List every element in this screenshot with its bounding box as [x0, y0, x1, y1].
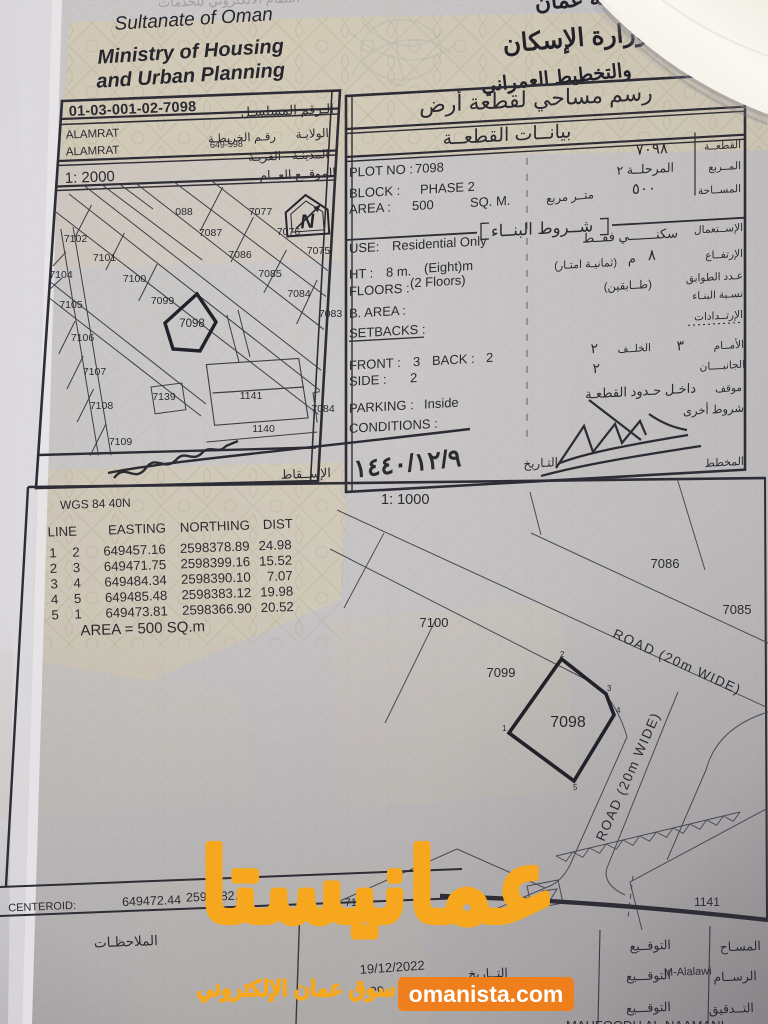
svg-text:649472.44: 649472.44: [122, 893, 182, 909]
svg-text:7101: 7101: [93, 252, 117, 264]
svg-text:5: 5: [51, 607, 59, 622]
svg-text:PHASE 2: PHASE 2: [420, 179, 475, 197]
svg-text:2: 2: [410, 370, 417, 385]
svg-text:7099: 7099: [487, 665, 516, 680]
svg-text:USE:: USE:: [349, 239, 379, 256]
svg-text:3: 3: [50, 576, 58, 591]
svg-text:7100: 7100: [420, 615, 449, 630]
svg-text:الجانبــــان: الجانبــــان: [700, 359, 745, 374]
svg-text:649484.34: 649484.34: [104, 572, 167, 589]
svg-text:3: 3: [607, 684, 612, 693]
svg-text:7104: 7104: [49, 269, 73, 281]
svg-text:2598378.89: 2598378.89: [180, 539, 250, 556]
svg-text:(2 Floors): (2 Floors): [410, 272, 466, 290]
svg-text:7102: 7102: [64, 233, 88, 245]
svg-text:7105: 7105: [59, 299, 83, 311]
svg-text:DIST: DIST: [263, 516, 294, 532]
svg-text:FRONT :: FRONT :: [349, 355, 401, 373]
svg-text:1: 1: [49, 545, 57, 560]
svg-text:7106: 7106: [71, 332, 95, 344]
svg-text:المســاحة: المســاحة: [698, 183, 741, 197]
svg-text:2: 2: [72, 544, 80, 559]
svg-text:7086: 7086: [651, 556, 680, 571]
svg-text:2598383.12: 2598383.12: [181, 585, 251, 602]
svg-text:٥٠٠: ٥٠٠: [632, 180, 656, 198]
svg-text:EASTING: EASTING: [108, 520, 166, 537]
svg-text:2: 2: [486, 350, 493, 365]
svg-text:7087: 7087: [199, 227, 223, 239]
svg-text:الولايـة: الولايـة: [295, 126, 329, 141]
svg-text:7084: 7084: [311, 403, 335, 415]
svg-text:1: 1: [74, 606, 82, 621]
svg-text:2598366.90: 2598366.90: [182, 600, 252, 617]
svg-text:الإرتفــاع: الإرتفــاع: [705, 248, 743, 262]
svg-text:التــدقيق: التــدقيق: [709, 1001, 755, 1018]
svg-text:7075: 7075: [307, 245, 331, 257]
svg-text:2598399.16: 2598399.16: [180, 554, 250, 571]
svg-text:649485.48: 649485.48: [105, 588, 168, 605]
svg-text:1141: 1141: [240, 390, 263, 402]
svg-text:7107: 7107: [83, 366, 107, 378]
svg-text:MAHFOODH AL-NAAMANI: MAHFOODH AL-NAAMANI: [566, 1018, 724, 1024]
svg-text:WGS 84 40N: WGS 84 40N: [60, 496, 131, 512]
svg-text:القطعــة: القطعــة: [704, 139, 741, 153]
svg-text:BLOCK :: BLOCK :: [349, 183, 400, 201]
svg-text:HT :: HT :: [349, 265, 373, 281]
svg-text:7085: 7085: [258, 268, 282, 280]
svg-text:2: 2: [50, 561, 58, 576]
svg-text:(طــابقين): (طــابقين): [604, 278, 652, 294]
svg-text:NORTHING: NORTHING: [180, 517, 251, 534]
svg-text:٢: ٢: [590, 340, 598, 356]
svg-text:7086: 7086: [228, 249, 252, 261]
svg-text:1141: 1141: [694, 895, 720, 909]
svg-text:B. AREA :: B. AREA :: [349, 303, 406, 321]
svg-text:24.98: 24.98: [258, 537, 292, 553]
svg-text:2598390.10: 2598390.10: [181, 570, 251, 587]
svg-text:5: 5: [74, 591, 82, 606]
svg-text:المخطط: المخطط: [705, 456, 744, 470]
svg-text:7098: 7098: [550, 714, 586, 731]
svg-text:المسـاح: المسـاح: [719, 939, 761, 955]
svg-text:LINE: LINE: [47, 524, 77, 540]
svg-text:20.52: 20.52: [260, 599, 294, 615]
svg-text:موقف: موقف: [715, 382, 742, 396]
svg-text:التوقـــيع: التوقـــيع: [626, 1000, 671, 1017]
svg-text:088: 088: [175, 206, 193, 218]
svg-text:649471.75: 649471.75: [104, 557, 167, 574]
svg-text:ALAMRAT: ALAMRAT: [66, 144, 120, 158]
svg-text:AREA :: AREA :: [349, 199, 391, 216]
svg-text:7085: 7085: [723, 602, 752, 617]
svg-text:م: م: [628, 251, 636, 267]
svg-text:٧٠٩٨: ٧٠٩٨: [636, 140, 668, 159]
svg-text:649473.81: 649473.81: [105, 603, 168, 620]
svg-text:٢: ٢: [592, 360, 600, 376]
svg-text:4: 4: [73, 575, 81, 590]
svg-text:2: 2: [560, 650, 565, 659]
svg-text:4: 4: [51, 592, 59, 607]
svg-text:7108: 7108: [90, 400, 114, 412]
svg-text:SQ. M.: SQ. M.: [470, 193, 510, 210]
svg-text:المــربع: المــربع: [708, 160, 741, 174]
svg-text:BACK :: BACK :: [432, 351, 475, 368]
svg-text:7099: 7099: [151, 295, 175, 307]
svg-text:8 m.: 8 m.: [386, 263, 411, 279]
svg-text:7109: 7109: [109, 436, 133, 448]
svg-text:1140: 1140: [252, 423, 275, 435]
svg-text:٨: ٨: [648, 247, 656, 264]
svg-text:7139: 7139: [152, 391, 176, 403]
svg-text:19.98: 19.98: [260, 584, 294, 600]
svg-text:التوقــيع: التوقــيع: [629, 938, 671, 954]
svg-text:3: 3: [413, 354, 420, 369]
svg-text:ALAMRAT: ALAMRAT: [66, 127, 120, 141]
svg-text:Inside: Inside: [424, 395, 459, 412]
svg-text:1: 2000: 1: 2000: [65, 168, 116, 187]
svg-text:7098: 7098: [179, 318, 205, 330]
svg-text:SIDE :: SIDE :: [349, 372, 387, 389]
svg-text:7084: 7084: [287, 288, 311, 300]
svg-text:15.52: 15.52: [259, 553, 293, 569]
svg-text:M-Alalawi: M-Alalawi: [664, 965, 712, 979]
svg-text:649457.16: 649457.16: [103, 541, 166, 558]
svg-text:الملاحظـات: الملاحظـات: [94, 933, 158, 950]
svg-text:سوق عمان الإلكتروني: سوق عمان الإلكتروني: [196, 976, 395, 1003]
svg-text:4: 4: [616, 706, 621, 715]
svg-text:1: 1: [502, 724, 507, 733]
svg-text:7098: 7098: [415, 160, 444, 177]
svg-text:3: 3: [73, 560, 81, 575]
svg-text:1: 1000: 1: 1000: [381, 492, 429, 508]
svg-text:649-598: 649-598: [210, 139, 243, 150]
svg-text:التـاريخ: التـاريخ: [523, 455, 558, 471]
svg-text:عمانيستا: عمانيستا: [200, 831, 556, 943]
svg-text:7.07: 7.07: [267, 568, 293, 584]
svg-text:7083: 7083: [319, 308, 343, 320]
svg-text:7100: 7100: [123, 273, 147, 285]
svg-text:الخلــف: الخلــف: [618, 342, 651, 356]
svg-text:الرســام: الرســام: [713, 969, 757, 986]
svg-text:omanista.com: omanista.com: [409, 981, 564, 1007]
svg-text:500: 500: [412, 197, 434, 213]
svg-text:7077: 7077: [249, 206, 273, 218]
svg-text:٣: ٣: [676, 337, 684, 353]
svg-text:5: 5: [573, 783, 578, 792]
